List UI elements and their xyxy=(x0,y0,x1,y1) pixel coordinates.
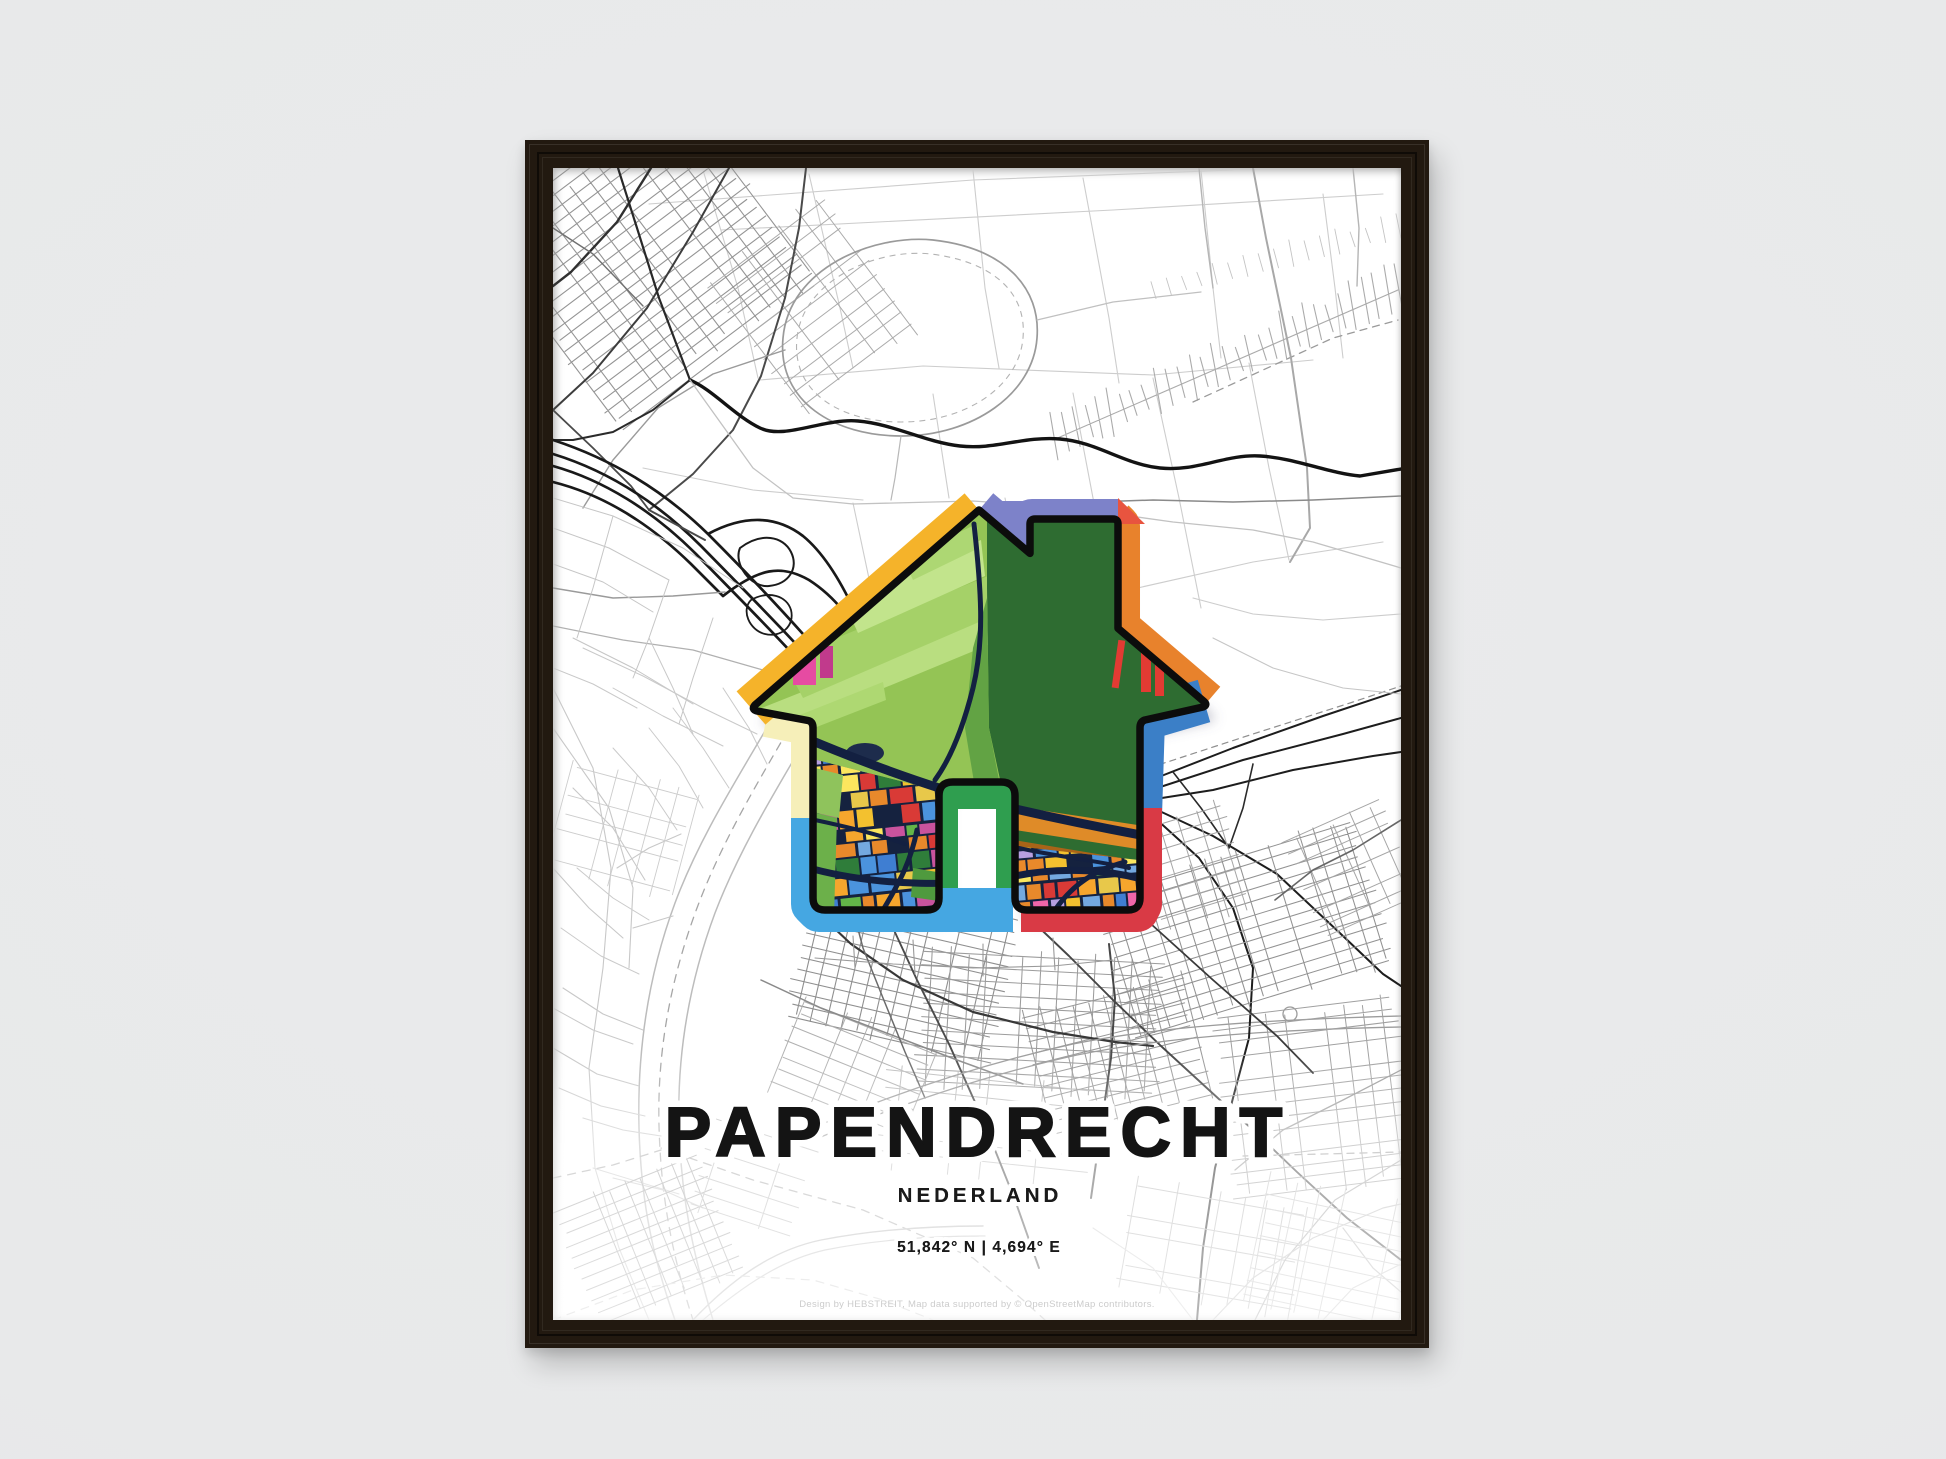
svg-text:PAPENDRECHT: PAPENDRECHT xyxy=(665,1093,1292,1171)
svg-text:NEDERLAND: NEDERLAND xyxy=(898,1184,1063,1207)
svg-text:51,842° N | 4,694° E: 51,842° N | 4,694° E xyxy=(897,1239,1061,1256)
svg-text:Design by HEBSTREIT, Map data: Design by HEBSTREIT, Map data supported … xyxy=(799,1299,1154,1310)
